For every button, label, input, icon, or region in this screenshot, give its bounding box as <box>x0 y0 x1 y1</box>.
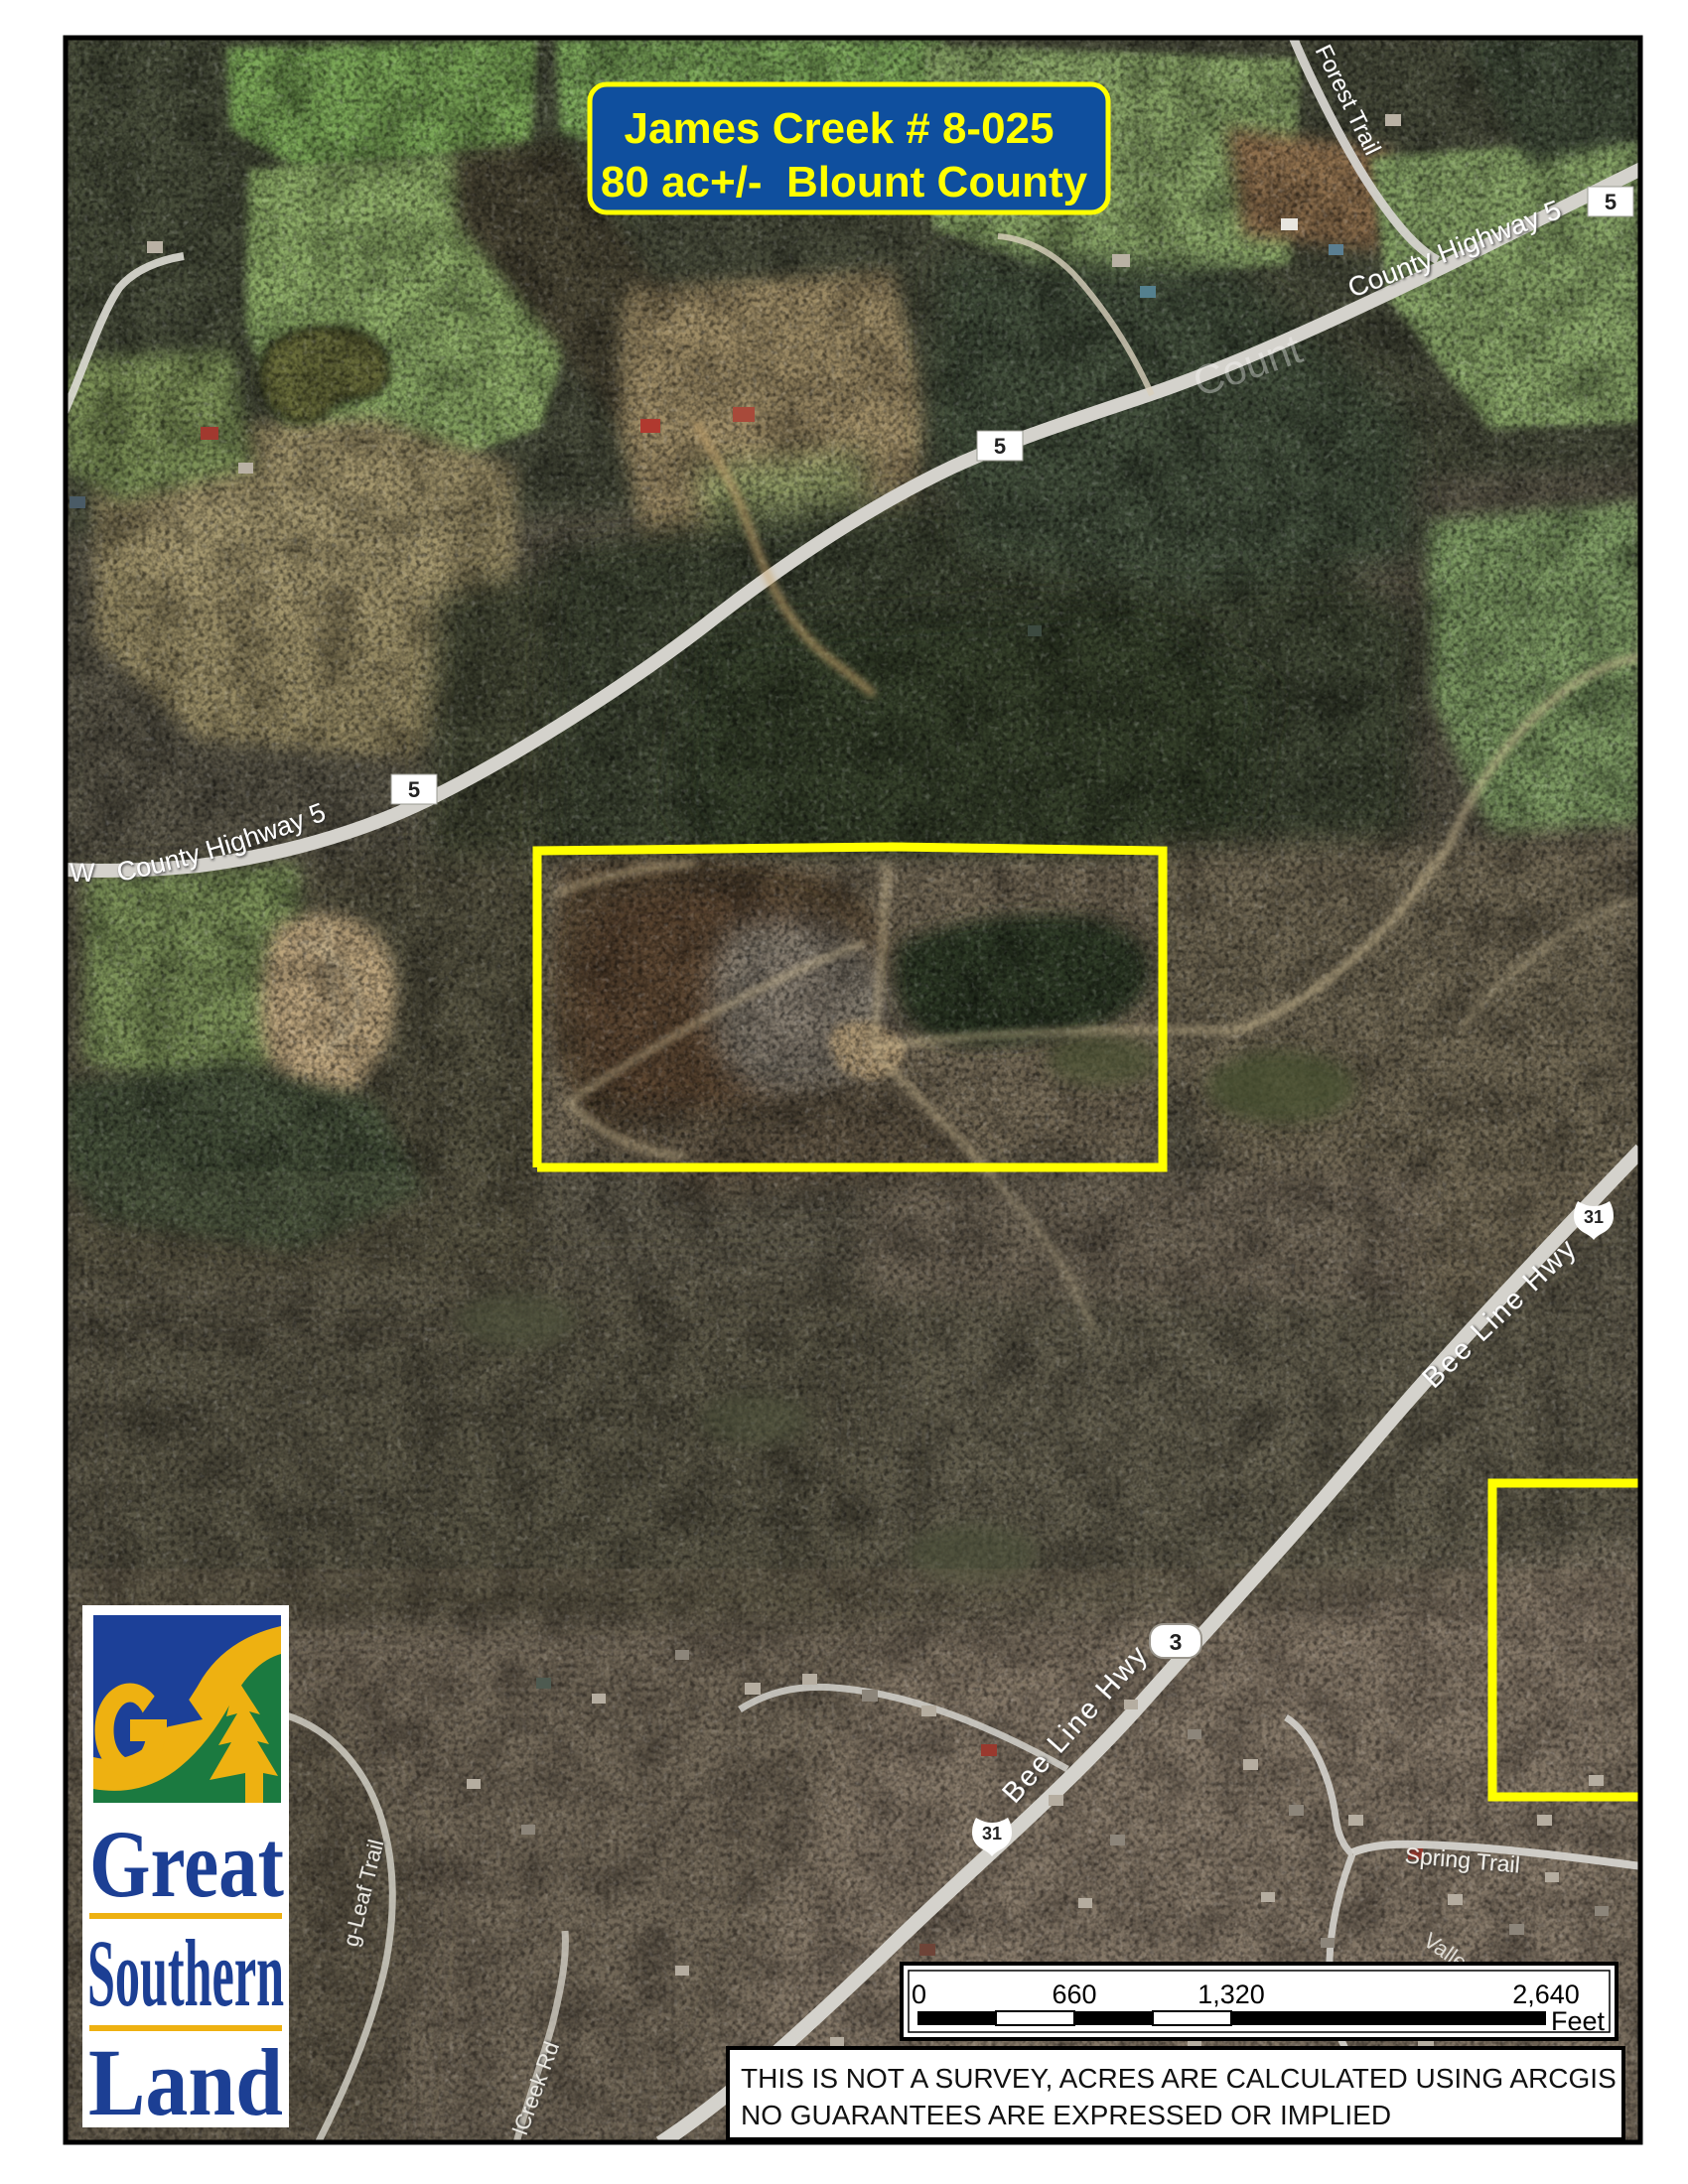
svg-text:31: 31 <box>1584 1207 1604 1227</box>
svg-text:THIS IS NOT A SURVEY, ACRES AR: THIS IS NOT A SURVEY, ACRES ARE CALCULAT… <box>741 2063 1617 2094</box>
svg-text:5: 5 <box>1605 190 1617 214</box>
svg-text:5: 5 <box>994 434 1006 459</box>
svg-text:Feet: Feet <box>1551 2006 1606 2036</box>
svg-text:0: 0 <box>912 1979 926 2009</box>
svg-text:3: 3 <box>1170 1629 1183 1655</box>
svg-text:NO GUARANTEES ARE EXPRESSED OR: NO GUARANTEES ARE EXPRESSED OR IMPLIED <box>741 2100 1391 2130</box>
svg-text:1,320: 1,320 <box>1197 1979 1265 2009</box>
svg-text:James Creek # 8-025: James Creek # 8-025 <box>625 104 1055 153</box>
svg-text:660: 660 <box>1052 1979 1096 2009</box>
svg-text:Southern: Southern <box>87 1920 284 2026</box>
svg-text:5: 5 <box>408 777 420 802</box>
svg-text:31: 31 <box>982 1824 1002 1843</box>
svg-text:W: W <box>70 858 95 887</box>
svg-text:2,640: 2,640 <box>1512 1979 1580 2009</box>
svg-text:80 ac+/- Blount County: 80 ac+/- Blount County <box>601 158 1088 206</box>
svg-text:Land: Land <box>88 2029 283 2135</box>
svg-text:Great: Great <box>89 1811 284 1917</box>
